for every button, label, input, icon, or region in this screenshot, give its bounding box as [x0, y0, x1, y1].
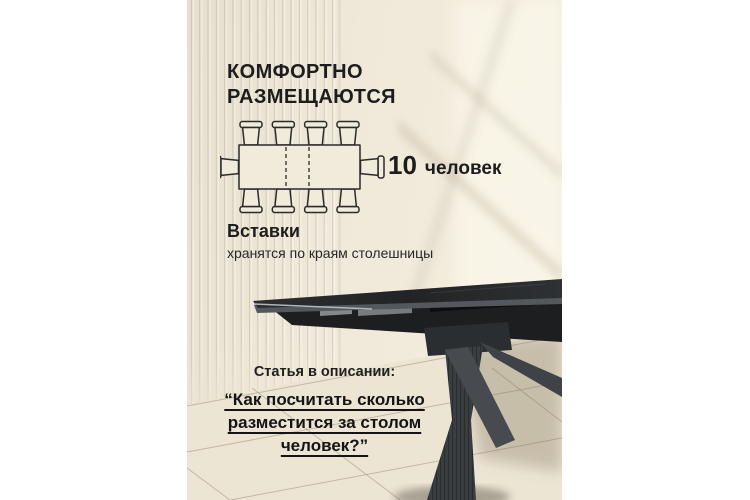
product-infographic-card: КОМФОРТНО РАЗМЕЩАЮТСЯ 10 человек Вставки… [187, 0, 562, 500]
capacity-label: 10 человек [388, 150, 501, 181]
article-quote-line1: “Как посчитать сколько [192, 388, 457, 411]
inserts-title: Вставки [227, 221, 300, 242]
chair-icon [272, 189, 294, 213]
chair-icon [337, 189, 359, 213]
capacity-number: 10 [388, 150, 417, 181]
capacity-unit: человек [425, 158, 502, 180]
chair-icon [337, 122, 359, 146]
chair-icon [305, 122, 327, 146]
chair-icon [305, 189, 327, 213]
article-note: Статья в описании: “Как посчитать скольк… [192, 364, 457, 457]
article-quote-line3: человек?” [192, 434, 457, 457]
inserts-subtitle: хранятся по краям столешницы [227, 245, 433, 261]
chair-icon [240, 122, 262, 146]
headline: КОМФОРТНО РАЗМЕЩАЮТСЯ [227, 60, 396, 110]
headline-line1: КОМФОРТНО [227, 60, 396, 85]
chair-icon [240, 189, 262, 213]
chair-icon [220, 156, 239, 178]
chair-icon [361, 156, 385, 178]
table-seating-diagram [220, 112, 385, 218]
headline-line2: РАЗМЕЩАЮТСЯ [227, 85, 396, 110]
article-quote-line2: разместится за столом [192, 411, 457, 434]
article-lead: Статья в описании: [192, 364, 457, 380]
chair-icon [272, 122, 294, 146]
article-quote: “Как посчитать сколько разместится за ст… [192, 388, 457, 457]
screenshot-stage: КОМФОРТНО РАЗМЕЩАЮТСЯ 10 человек Вставки… [0, 0, 750, 500]
table-outline [239, 145, 360, 189]
